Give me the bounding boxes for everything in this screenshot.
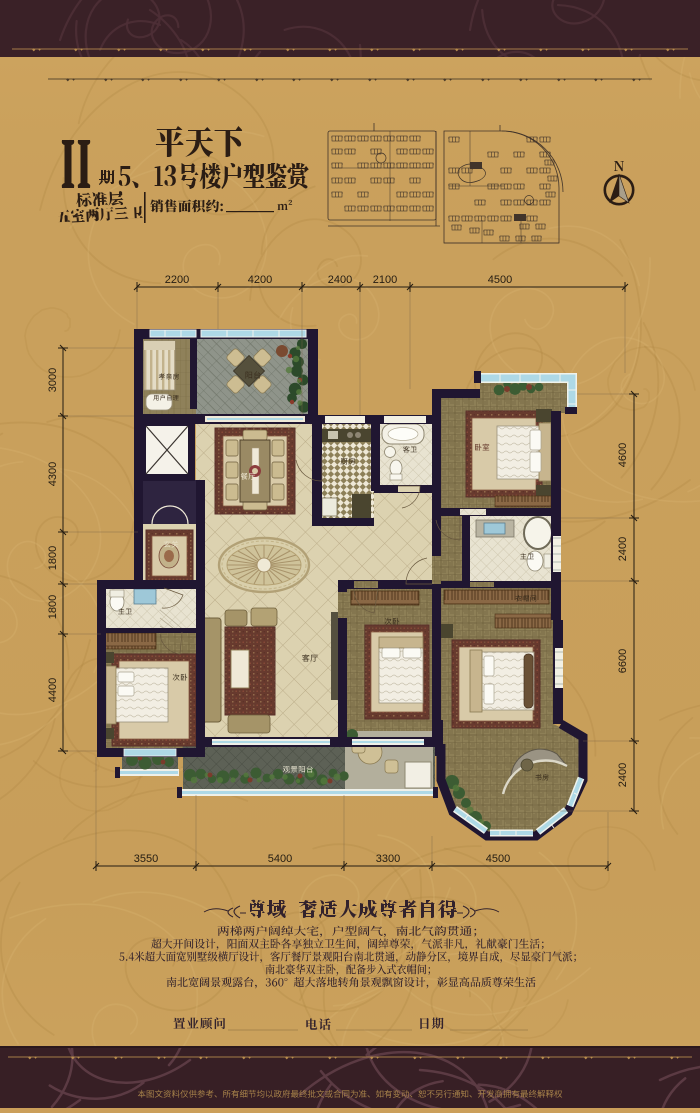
- svg-text:3550: 3550: [134, 853, 158, 865]
- svg-text:3300: 3300: [376, 853, 400, 865]
- svg-text:2400: 2400: [617, 537, 629, 561]
- svg-text:4200: 4200: [248, 274, 272, 286]
- svg-text:5400: 5400: [268, 853, 292, 865]
- svg-text:6600: 6600: [617, 649, 629, 673]
- svg-text:2400: 2400: [328, 274, 352, 286]
- svg-text:2400: 2400: [617, 763, 629, 787]
- svg-text:4500: 4500: [486, 853, 510, 865]
- svg-text:1800: 1800: [47, 546, 59, 570]
- svg-text:4300: 4300: [47, 462, 59, 486]
- svg-text:4400: 4400: [47, 678, 59, 702]
- svg-text:3000: 3000: [47, 368, 59, 392]
- svg-text:4500: 4500: [488, 274, 512, 286]
- svg-text:2100: 2100: [373, 274, 397, 286]
- svg-text:4600: 4600: [617, 443, 629, 467]
- svg-text:2200: 2200: [165, 274, 189, 286]
- svg-text:1800: 1800: [47, 595, 59, 619]
